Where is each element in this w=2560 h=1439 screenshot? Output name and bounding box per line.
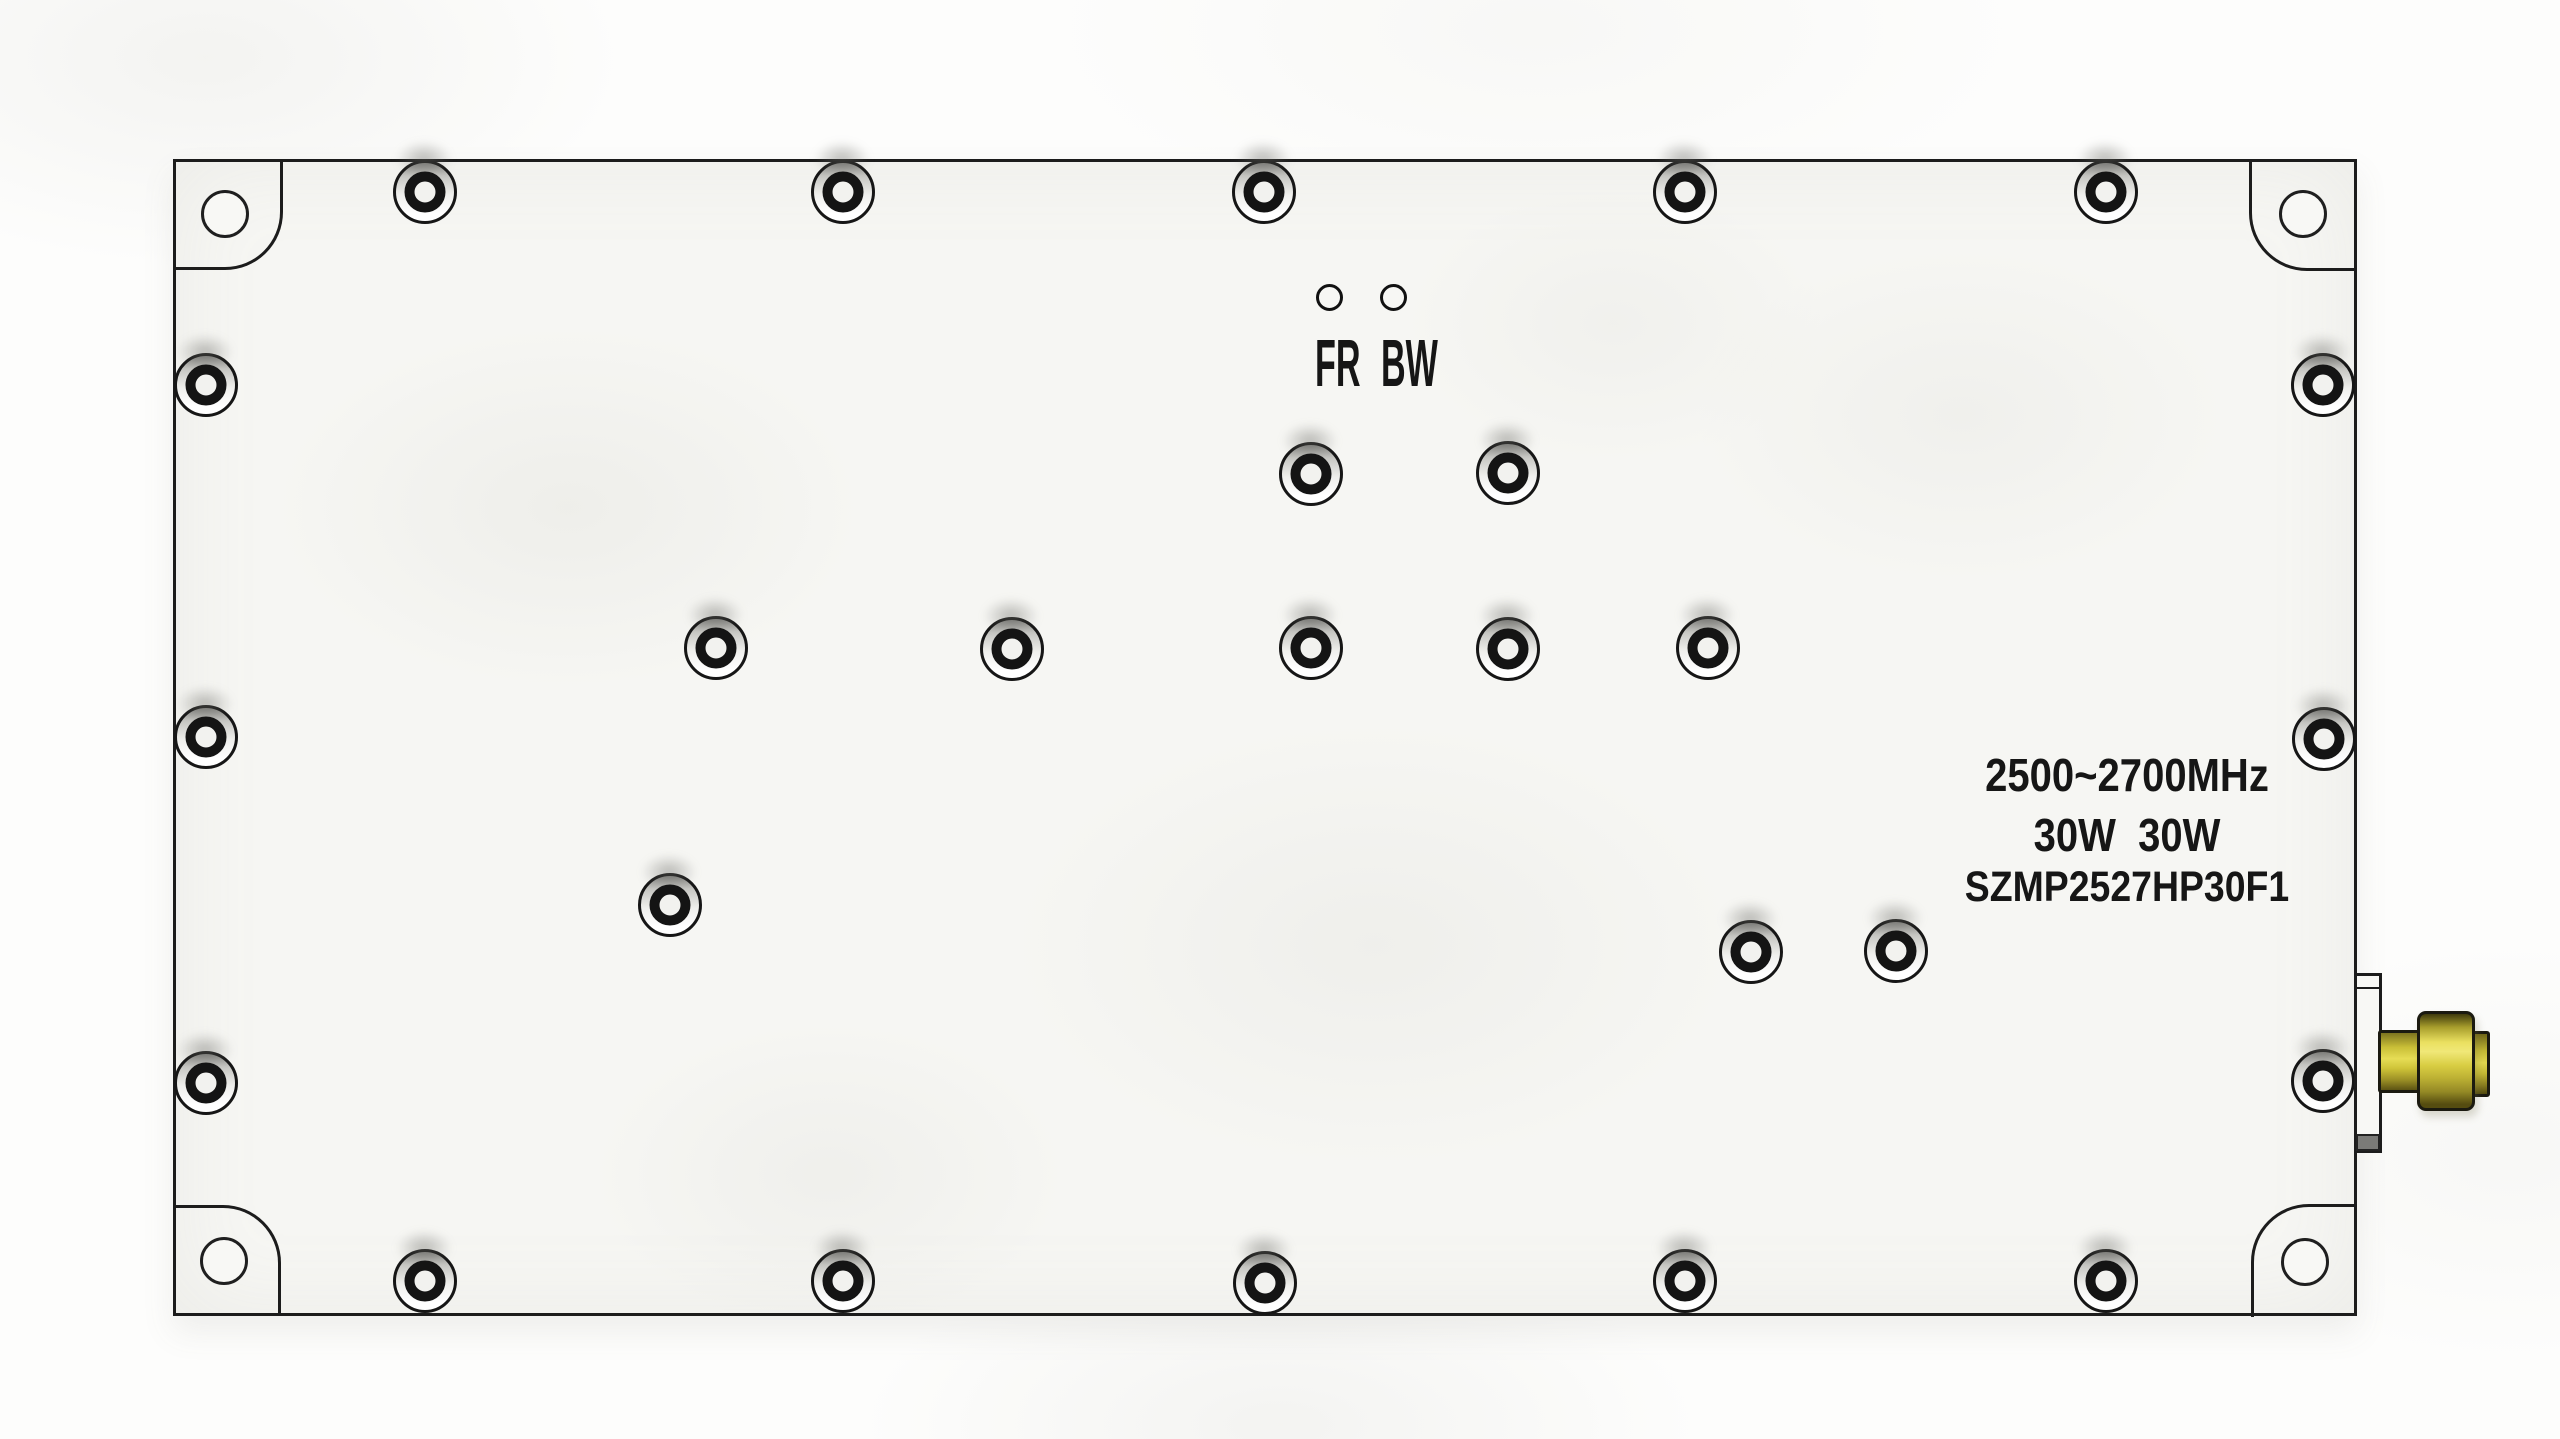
indicator-fr-label: FR: [1315, 330, 1361, 397]
cover-screw: [2074, 160, 2138, 224]
corner-mount-hole: [2281, 1238, 2329, 1286]
cover-screw: [1232, 160, 1296, 224]
cover-screw: [2292, 707, 2356, 771]
cover-screw: [638, 873, 702, 937]
cover-screw: [1279, 442, 1343, 506]
cover-screw: [1233, 1251, 1297, 1315]
device-photo: FR BW 2500~2700MHz 30W 30W SZMP2527HP30F…: [0, 0, 2560, 1439]
cover-screw: [174, 705, 238, 769]
cover-screw: [174, 353, 238, 417]
led-hole-fr: [1316, 284, 1343, 311]
rf-connector-nut: [2417, 1011, 2475, 1111]
cover-screw: [980, 617, 1044, 681]
indicator-bw-label: BW: [1381, 330, 1438, 397]
cover-screw: [684, 616, 748, 680]
cover-screw: [174, 1051, 238, 1115]
cover-screw: [811, 1249, 875, 1313]
cover-screw: [393, 1249, 457, 1313]
cover-screw: [2074, 1249, 2138, 1313]
model-label: SZMP2527HP30F1: [1953, 866, 2301, 909]
cover-screw: [1653, 160, 1717, 224]
connector-flange-foot: [2356, 1134, 2380, 1151]
cover-screw: [1676, 616, 1740, 680]
led-hole-bw: [1380, 284, 1407, 311]
cover-screw: [1864, 919, 1928, 983]
corner-mount-hole: [200, 1237, 248, 1285]
cover-screw: [2291, 1049, 2355, 1113]
corner-mount-hole: [201, 190, 249, 238]
corner-mount-hole: [2279, 190, 2327, 238]
cover-screw: [1476, 617, 1540, 681]
cover-screw: [1279, 616, 1343, 680]
frequency-label: 2500~2700MHz: [1953, 752, 2301, 798]
amplifier-module-panel: [173, 159, 2357, 1316]
cover-screw: [393, 160, 457, 224]
cover-screw: [2291, 353, 2355, 417]
cover-screw: [811, 160, 875, 224]
indicator-labels: FR BW: [1315, 330, 1438, 397]
cover-screw: [1476, 441, 1540, 505]
power-label: 30W 30W: [1953, 812, 2301, 858]
cover-screw: [1653, 1249, 1717, 1313]
cover-screw: [1719, 920, 1783, 984]
